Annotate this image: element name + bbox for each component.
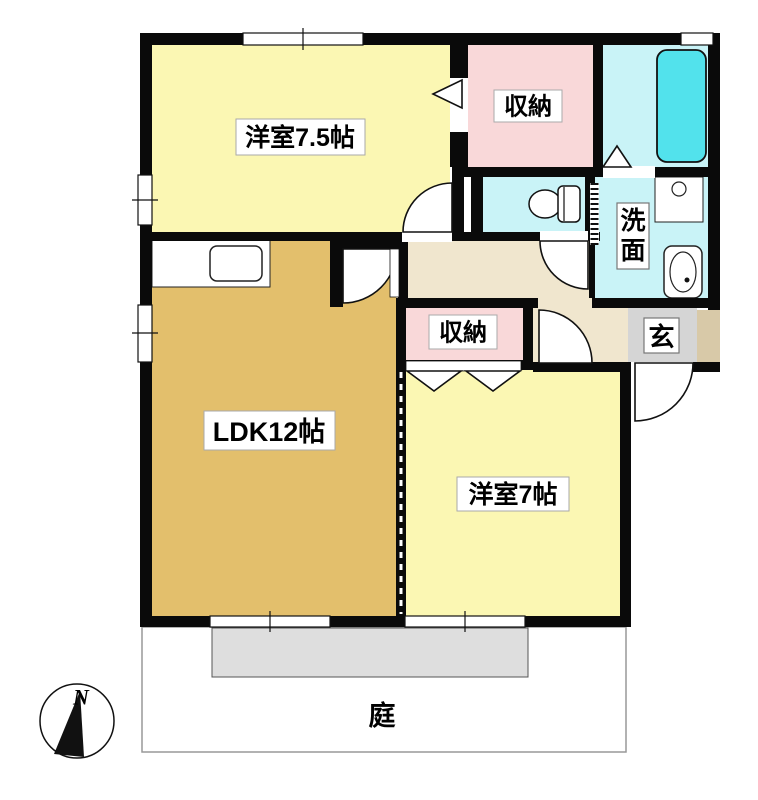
label-washroom-2: 面 — [620, 237, 645, 265]
closet-mid-door-track — [406, 361, 521, 371]
wash-basin-bowl — [670, 252, 696, 292]
entrance-porch — [697, 310, 720, 362]
wall-ldk-room7-divider — [396, 308, 406, 618]
entrance-door-arc — [635, 363, 693, 421]
toilet-bowl — [529, 190, 561, 218]
wall-top — [140, 33, 720, 45]
label-ldk: LDK12帖 — [213, 417, 326, 447]
gap-double-wall — [464, 177, 471, 232]
floor-plan-page: 洋室7.5帖 収納 収納 洗 面 玄 LDK12帖 洋室7帖 庭 N — [0, 0, 758, 800]
floor-plan-drawing: 洋室7.5帖 収納 収納 洗 面 玄 LDK12帖 洋室7帖 庭 N — [0, 0, 758, 800]
ldk-door-leaf — [390, 249, 399, 297]
wall-double-b — [471, 177, 483, 232]
label-room75: 洋室7.5帖 — [245, 123, 355, 152]
label-garden: 庭 — [369, 700, 396, 731]
label-genkan: 玄 — [648, 322, 674, 352]
bathtub — [657, 50, 706, 162]
compass: N — [40, 684, 114, 758]
wall-closetmid-top — [396, 298, 538, 308]
washer-faucet-icon — [672, 182, 686, 196]
wall-genkan-corner — [693, 362, 720, 372]
basin-drain — [685, 278, 690, 283]
label-closet-mid: 収納 — [439, 319, 487, 347]
wall-washroom-left — [589, 241, 595, 298]
wall-horizontal-mid — [452, 167, 720, 177]
label-washroom-1: 洗 — [620, 207, 645, 235]
wall-double-a — [452, 177, 464, 232]
wall-closetmid-right — [523, 308, 533, 362]
window-bath — [681, 33, 713, 45]
kitchen-sink — [210, 246, 262, 281]
wall-room7-right — [620, 362, 631, 627]
toilet-tank — [558, 186, 580, 222]
wall-room75-bottom — [140, 232, 403, 241]
wall-closet-bath — [593, 45, 603, 167]
compass-north-label: N — [72, 685, 90, 710]
label-room7: 洋室7帖 — [469, 480, 558, 509]
wall-washroom-bottom — [592, 298, 720, 308]
wall-kitchen — [330, 240, 343, 307]
wood-deck — [212, 628, 528, 677]
wall-toilet-bottom — [452, 232, 540, 241]
label-closet-top: 収納 — [504, 93, 552, 121]
